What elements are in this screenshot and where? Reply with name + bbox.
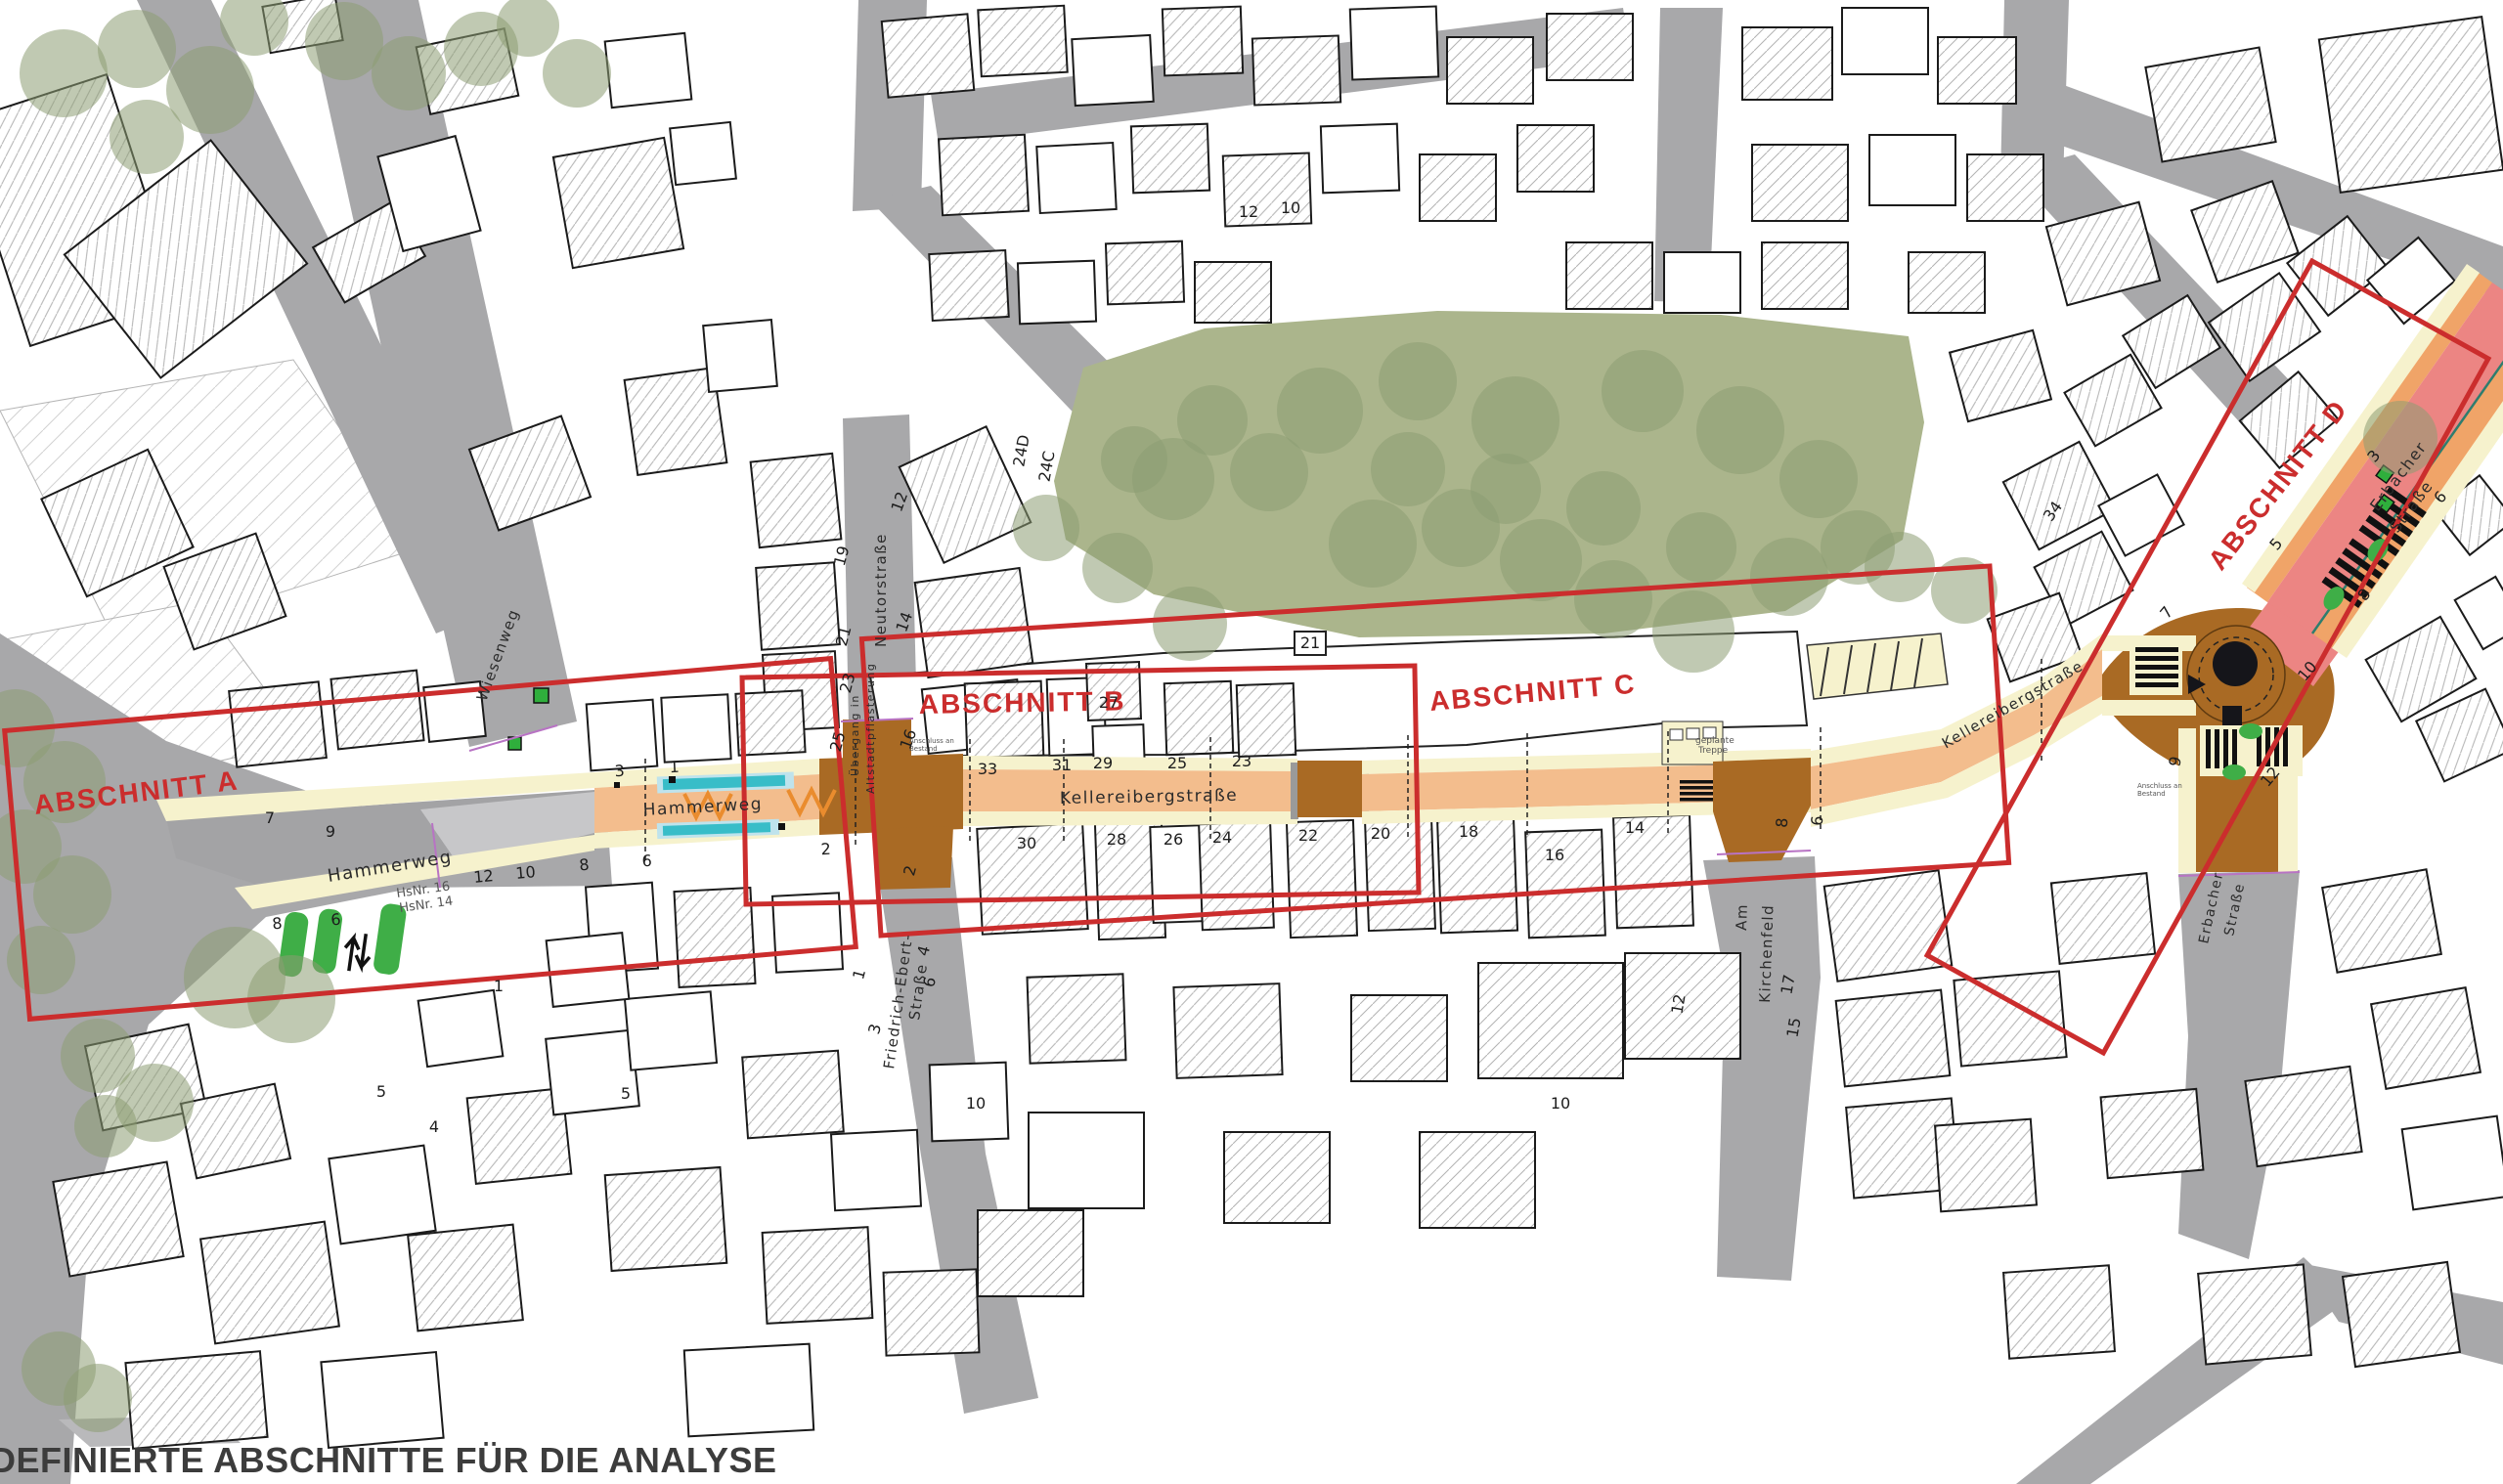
building <box>1566 242 1652 309</box>
house-number: 6 <box>1808 815 1827 827</box>
building <box>742 1051 844 1139</box>
tree <box>372 36 446 110</box>
street-label: Neutorstraße <box>872 533 890 647</box>
building <box>661 694 730 762</box>
street-label: Altstadtpflasterung <box>864 663 877 794</box>
house-number: 31 <box>1052 756 1072 774</box>
building <box>1954 971 2066 1066</box>
house-number: 10 <box>1281 198 1300 217</box>
building <box>756 562 840 649</box>
house-number: 9 <box>326 822 335 841</box>
house-number: 1 <box>494 977 504 995</box>
tree <box>1865 532 1935 602</box>
building <box>670 122 736 185</box>
tree <box>1652 590 1735 673</box>
street-label: Kellereibergstraße <box>1060 786 1239 808</box>
tree <box>1101 426 1167 493</box>
building <box>831 1130 921 1210</box>
building <box>1935 1119 2037 1212</box>
tree <box>1779 440 1858 518</box>
house-number: 8 <box>272 914 284 934</box>
house-number: 16 <box>1545 846 1564 864</box>
building <box>1909 252 1985 313</box>
annotation: geplante <box>1695 736 1735 746</box>
house-number: 5 <box>621 1084 631 1103</box>
annotation: Anschluss an <box>2137 782 2182 790</box>
house-number: 21 <box>1300 633 1320 652</box>
building <box>1824 870 1952 981</box>
building <box>200 1222 339 1344</box>
house-number: 12 <box>473 866 495 887</box>
house-number: 23 <box>1232 752 1251 770</box>
building <box>2101 1089 2204 1178</box>
building <box>884 1269 980 1355</box>
street-label: Kirchenfeld <box>1756 904 1778 1004</box>
building <box>1131 124 1209 194</box>
building <box>929 250 1008 321</box>
building <box>321 1352 443 1448</box>
house-number: 10 <box>1551 1094 1570 1113</box>
building <box>1163 7 1243 76</box>
house-number: 7 <box>265 808 275 827</box>
tree <box>1471 454 1541 524</box>
tree <box>64 1364 132 1432</box>
tree <box>33 855 111 934</box>
house-number: 3 <box>614 762 625 781</box>
house-number: 15 <box>1782 1016 1804 1038</box>
site-plan: ABSCHNITT AABSCHNITT BABSCHNITT CABSCHNI… <box>0 0 2503 1484</box>
tree <box>1177 385 1248 456</box>
house-number: 6 <box>330 910 342 930</box>
building <box>1287 820 1357 938</box>
building <box>915 568 1033 677</box>
house-number: 30 <box>1017 834 1036 852</box>
section-label-B: ABSCHNITT B <box>919 685 1126 720</box>
building <box>1237 683 1296 757</box>
building <box>978 6 1067 77</box>
annotation: Bestand <box>2137 790 2166 798</box>
house-number: 27 <box>1099 693 1119 712</box>
tree <box>1602 350 1684 432</box>
house-number: 29 <box>1093 754 1113 772</box>
building <box>2371 987 2481 1089</box>
building <box>1252 35 1340 105</box>
building <box>1420 154 1496 221</box>
building <box>553 138 683 268</box>
tree <box>1082 533 1153 603</box>
building <box>1321 124 1399 194</box>
building <box>408 1225 523 1331</box>
building <box>1106 241 1184 305</box>
tree <box>1277 368 1363 454</box>
house-number: 25 <box>1167 754 1187 772</box>
house-number: 10 <box>966 1094 986 1113</box>
house-number: 33 <box>978 760 997 778</box>
building <box>1029 1113 1144 1208</box>
building <box>1224 1132 1330 1223</box>
house-number: 2 <box>820 840 831 859</box>
building <box>2322 869 2441 972</box>
building <box>125 1351 267 1449</box>
building <box>1195 262 1271 323</box>
building <box>329 1146 435 1244</box>
street-label: Übergang in <box>849 694 861 776</box>
tree <box>98 10 176 88</box>
building <box>674 888 755 987</box>
building <box>1967 154 2043 221</box>
building <box>735 690 805 755</box>
building <box>2198 1264 2311 1364</box>
building <box>1447 37 1533 104</box>
house-number: 20 <box>1371 824 1390 843</box>
house-number: 4 <box>429 1117 439 1136</box>
building <box>684 1344 813 1437</box>
site-plan-map: ABSCHNITT AABSCHNITT BABSCHNITT CABSCHNI… <box>0 0 2503 1484</box>
tree <box>1566 471 1641 546</box>
building <box>1027 974 1125 1063</box>
building <box>703 320 777 392</box>
building <box>587 700 658 771</box>
building <box>763 1227 873 1324</box>
building <box>2145 47 2275 161</box>
house-number: 24 <box>1212 828 1232 847</box>
building <box>1742 27 1832 100</box>
house-number: 28 <box>1107 830 1126 849</box>
tree <box>1329 500 1417 588</box>
building <box>1547 14 1633 80</box>
building <box>418 990 504 1067</box>
tree <box>1371 432 1445 506</box>
tree <box>543 39 611 108</box>
house-number: 18 <box>1459 822 1478 841</box>
building <box>1018 261 1096 325</box>
building <box>1836 990 1951 1087</box>
house-number: 14 <box>1625 818 1645 837</box>
tree <box>110 100 184 174</box>
building <box>1350 6 1438 79</box>
building <box>605 33 692 108</box>
building <box>1752 145 1848 221</box>
building <box>751 454 842 547</box>
street-label: Am <box>1733 903 1751 931</box>
house-number: 17 <box>1777 973 1798 995</box>
building <box>1762 242 1848 309</box>
building <box>1869 135 1955 205</box>
building <box>1072 35 1153 106</box>
tree <box>1574 560 1652 638</box>
house-number: 5 <box>376 1082 386 1101</box>
building <box>625 991 717 1069</box>
building <box>1938 37 2016 104</box>
tree <box>1153 587 1227 661</box>
building <box>1351 995 1447 1081</box>
building <box>1036 143 1116 213</box>
building <box>2319 17 2503 193</box>
house-number: 22 <box>1298 826 1318 845</box>
building <box>2402 1116 2503 1210</box>
building <box>939 135 1029 215</box>
building <box>882 14 974 97</box>
building <box>1420 1132 1535 1228</box>
caption: DEFINIERTE ABSCHNITTE FÜR DIE ANALYSE <box>0 1440 777 1480</box>
building <box>1842 8 1928 74</box>
tree <box>1500 519 1582 601</box>
building <box>1478 963 1623 1078</box>
house-number: 12 <box>1239 202 1258 221</box>
building <box>978 1210 1083 1296</box>
building <box>53 1161 183 1276</box>
house-number: 8 <box>579 855 591 875</box>
tree <box>1379 342 1457 420</box>
building <box>1517 125 1594 192</box>
building <box>2051 873 2155 964</box>
building <box>1664 252 1740 313</box>
tree <box>20 29 108 117</box>
tree <box>1666 512 1736 583</box>
tree <box>1013 495 1079 561</box>
building <box>1525 830 1605 938</box>
building <box>2245 1067 2361 1166</box>
tree <box>1471 376 1559 464</box>
annotation: Treppe <box>1697 746 1729 756</box>
building <box>1173 983 1282 1078</box>
house-number: 6 <box>641 851 652 871</box>
tree <box>74 1095 137 1157</box>
building <box>229 681 327 766</box>
building <box>2003 1265 2115 1358</box>
tree <box>305 2 383 80</box>
tree <box>7 926 75 994</box>
tree <box>1696 386 1784 474</box>
building <box>605 1167 727 1271</box>
building <box>1164 681 1234 755</box>
house-number: 12 <box>1667 992 1689 1015</box>
house-number: 10 <box>515 862 537 883</box>
building <box>2343 1262 2460 1367</box>
house-number: 1 <box>669 758 680 777</box>
house-number: 8 <box>1773 817 1792 829</box>
building <box>330 671 423 750</box>
house-number: 26 <box>1164 830 1183 849</box>
